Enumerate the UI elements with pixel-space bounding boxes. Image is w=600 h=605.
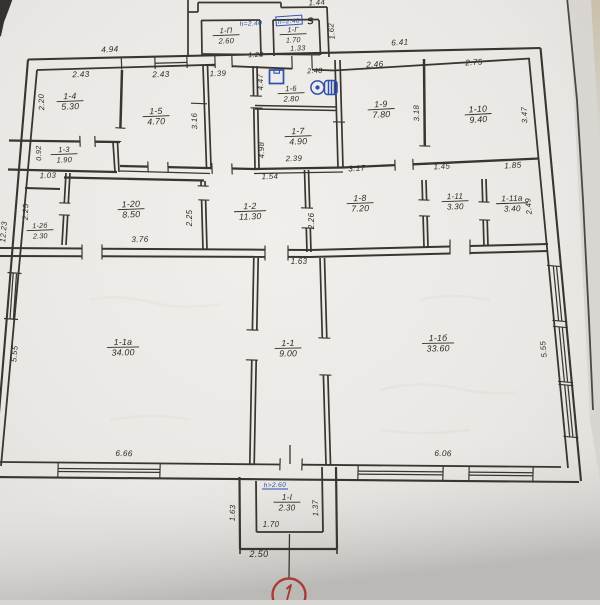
svg-text:2.49: 2.49	[523, 197, 534, 216]
svg-text:1-П: 1-П	[219, 26, 232, 35]
svg-text:h>2.60: h>2.60	[264, 482, 287, 490]
svg-text:4.47: 4.47	[256, 73, 266, 90]
svg-text:2.25: 2.25	[21, 203, 31, 221]
svg-text:2.46: 2.46	[365, 60, 384, 70]
svg-text:6.41: 6.41	[391, 38, 409, 48]
svg-text:2.50: 2.50	[249, 549, 269, 559]
svg-text:1-1: 1-1	[281, 338, 295, 348]
svg-text:2.60: 2.60	[217, 36, 234, 46]
svg-text:1-2: 1-2	[243, 201, 257, 211]
svg-text:1-1б: 1-1б	[429, 333, 448, 343]
svg-text:2.30: 2.30	[278, 503, 296, 512]
svg-text:1-3: 1-3	[58, 145, 70, 154]
svg-text:4.90: 4.90	[289, 136, 307, 147]
svg-text:1-7: 1-7	[291, 126, 306, 136]
svg-text:1.03: 1.03	[39, 171, 56, 181]
svg-text:2.25: 2.25	[185, 209, 194, 227]
svg-text:2.26: 2.26	[307, 212, 316, 230]
svg-text:5.30: 5.30	[61, 101, 79, 112]
svg-text:1-20: 1-20	[122, 199, 141, 210]
svg-text:11.30: 11.30	[239, 211, 262, 222]
svg-text:1.63: 1.63	[228, 504, 238, 521]
svg-text:7.80: 7.80	[372, 109, 390, 120]
svg-text:1-11а: 1-11а	[501, 194, 523, 204]
svg-text:4.98: 4.98	[257, 141, 267, 158]
svg-text:1.54: 1.54	[261, 172, 278, 182]
svg-text:2.30: 2.30	[32, 231, 48, 241]
svg-text:4.70: 4.70	[147, 116, 165, 127]
svg-text:h=2.40: h=2.40	[240, 20, 263, 28]
svg-text:1-8: 1-8	[353, 193, 367, 203]
svg-text:9.00: 9.00	[279, 348, 297, 358]
svg-text:6.06: 6.06	[434, 449, 452, 458]
svg-text:0.92: 0.92	[34, 145, 44, 161]
svg-text:1.39: 1.39	[209, 69, 226, 79]
svg-text:2.80: 2.80	[282, 94, 299, 104]
svg-text:2.43: 2.43	[71, 70, 90, 80]
svg-text:1.62: 1.62	[326, 22, 336, 40]
svg-text:1-2б: 1-2б	[32, 221, 48, 231]
svg-text:2.75: 2.75	[464, 58, 483, 68]
svg-text:33.60: 33.60	[427, 343, 450, 353]
svg-text:1.90: 1.90	[56, 155, 72, 165]
svg-text:6.66: 6.66	[115, 449, 133, 458]
svg-text:2.48: 2.48	[306, 66, 323, 76]
svg-text:1-6: 1-6	[285, 84, 297, 93]
svg-text:1.85: 1.85	[504, 161, 522, 171]
svg-text:1.37: 1.37	[311, 499, 321, 516]
svg-text:3.76: 3.76	[131, 235, 149, 244]
svg-text:2.20: 2.20	[37, 93, 47, 111]
svg-text:3.40: 3.40	[504, 204, 521, 214]
svg-text:3.47: 3.47	[520, 106, 530, 123]
svg-text:5.55: 5.55	[538, 340, 548, 358]
svg-text:3.16: 3.16	[190, 112, 200, 129]
svg-text:2.43: 2.43	[151, 70, 170, 80]
svg-text:7.20: 7.20	[351, 203, 369, 214]
svg-text:1-5: 1-5	[149, 106, 163, 116]
svg-text:8.50: 8.50	[122, 209, 140, 220]
svg-text:1-4: 1-4	[63, 91, 77, 101]
svg-text:1.45: 1.45	[433, 162, 450, 172]
svg-text:5.55: 5.55	[9, 345, 19, 363]
svg-text:1.70: 1.70	[263, 520, 280, 529]
svg-text:3.30: 3.30	[447, 202, 464, 212]
svg-text:1-I: 1-I	[282, 493, 293, 502]
svg-text:1-10: 1-10	[468, 104, 487, 115]
svg-text:1-Г: 1-Г	[287, 25, 299, 34]
svg-text:1.63: 1.63	[291, 257, 308, 266]
svg-text:1-1а: 1-1а	[114, 337, 133, 347]
svg-text:1.28: 1.28	[248, 50, 264, 60]
svg-text:3.17: 3.17	[348, 164, 366, 174]
svg-text:1.44: 1.44	[308, 0, 325, 7]
svg-text:1-11: 1-11	[446, 192, 463, 202]
svg-text:1.33: 1.33	[290, 43, 306, 53]
svg-text:4.94: 4.94	[101, 45, 119, 55]
svg-text:3.18: 3.18	[412, 104, 422, 121]
svg-text:2.39: 2.39	[284, 154, 302, 164]
svg-text:9.40: 9.40	[469, 114, 487, 125]
svg-text:34.00: 34.00	[112, 347, 135, 357]
svg-text:1-9: 1-9	[374, 99, 388, 110]
